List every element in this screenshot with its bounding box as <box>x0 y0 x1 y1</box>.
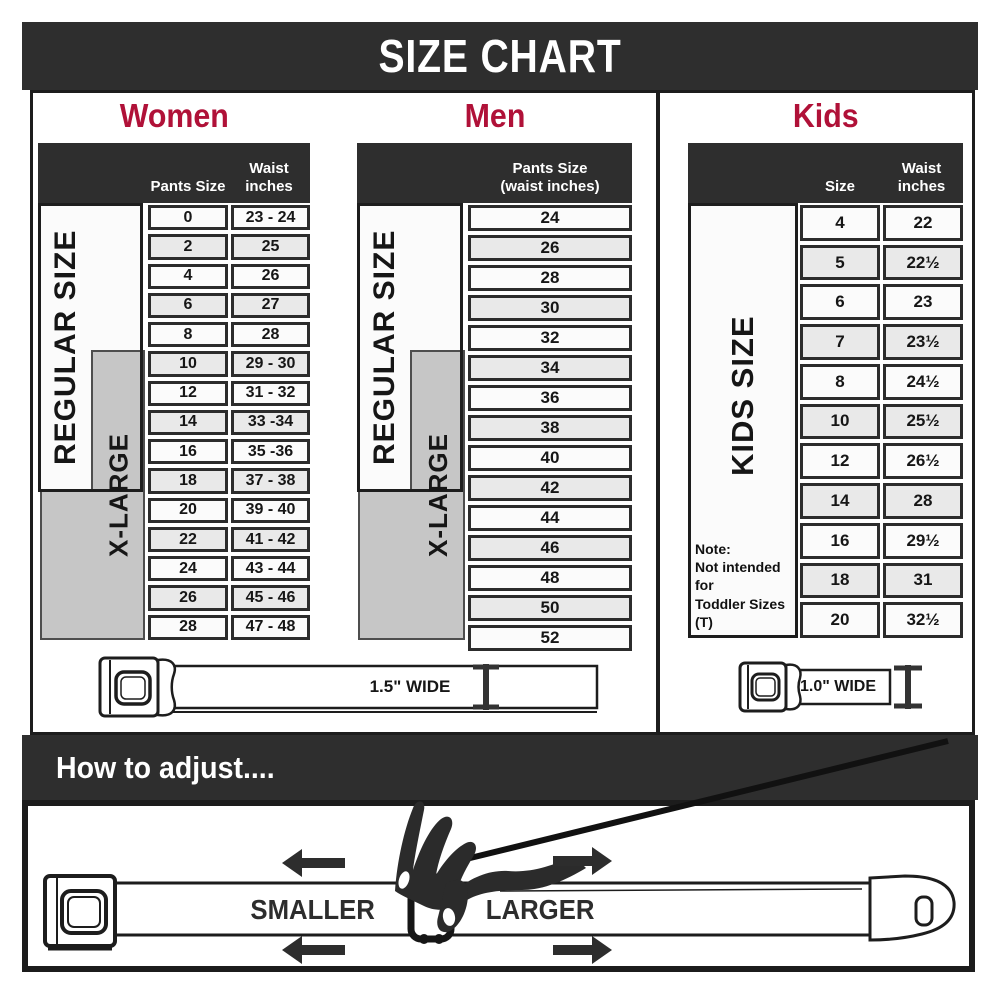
women-row-8-waist: 35 -36 <box>231 439 310 464</box>
women-row-6-waist: 31 - 32 <box>231 381 310 406</box>
men-row-1-pants-size: 26 <box>468 235 632 261</box>
men-row-12-pants-size: 48 <box>468 565 632 591</box>
women-row-13-waist: 45 - 46 <box>231 585 310 610</box>
kids-col-size: Size <box>800 143 880 203</box>
women-heading-text: Women <box>119 97 228 135</box>
women-section-heading: Women <box>38 95 310 137</box>
kids-size-box: KIDS SIZE Note: Not intended for Toddler… <box>688 203 798 638</box>
women-size-table: Pants Size Waist inches REGULAR SIZE X-L… <box>38 143 310 640</box>
men-section-heading: Men <box>357 95 632 137</box>
women-row-9-waist: 37 - 38 <box>231 468 310 493</box>
men-row-5-pants-size: 34 <box>468 355 632 381</box>
women-regular-size-label: REGULAR SIZE <box>38 203 94 492</box>
women-row-2-pants-size: 4 <box>148 264 228 289</box>
women-row-0-pants-size: 0 <box>148 205 228 230</box>
kids-row-10-waist: 32½ <box>883 602 963 638</box>
women-row-12-waist: 43 - 44 <box>231 556 310 581</box>
kids-row-9-waist: 31 <box>883 563 963 599</box>
kids-table-header: Size Waist inches <box>688 143 963 203</box>
title-band: SIZE CHART <box>22 22 978 90</box>
kids-row-0-waist: 22 <box>883 205 963 241</box>
women-row-13-pants-size: 26 <box>148 585 228 610</box>
adult-belt-strap-fold <box>158 660 175 716</box>
kids-row-0-size: 4 <box>800 205 880 241</box>
men-row-11-pants-size: 46 <box>468 535 632 561</box>
men-row-6-pants-size: 36 <box>468 385 632 411</box>
men-row-8-pants-size: 40 <box>468 445 632 471</box>
kids-row-3-waist: 23½ <box>883 324 963 360</box>
adjust-band: How to adjust.... <box>22 735 978 800</box>
kids-row-8-size: 16 <box>800 523 880 559</box>
kids-section-heading: Kids <box>688 95 963 137</box>
kids-rows: 422522½623723½824½1025½1226½14281629½183… <box>800 205 963 638</box>
women-row-8-pants-size: 16 <box>148 439 228 464</box>
kids-col-waist: Waist inches <box>880 143 963 203</box>
women-row-10-waist: 39 - 40 <box>231 498 310 523</box>
women-row-5-pants-size: 10 <box>148 351 228 376</box>
page-title: SIZE CHART <box>378 29 621 83</box>
women-row-14-waist: 47 - 48 <box>231 615 310 640</box>
kids-row-6-waist: 26½ <box>883 443 963 479</box>
women-row-7-pants-size: 14 <box>148 410 228 435</box>
kids-row-2-waist: 23 <box>883 284 963 320</box>
men-xlarge-label: X-LARGE <box>412 350 465 640</box>
women-row-10-pants-size: 20 <box>148 498 228 523</box>
women-row-5-waist: 29 - 30 <box>231 351 310 376</box>
women-row-3-pants-size: 6 <box>148 293 228 318</box>
women-rows: 023 - 242254266278281029 - 301231 - 3214… <box>148 205 310 640</box>
kids-row-2-size: 6 <box>800 284 880 320</box>
women-row-1-waist: 25 <box>231 234 310 259</box>
men-row-0-pants-size: 24 <box>468 205 632 231</box>
women-row-1-pants-size: 2 <box>148 234 228 259</box>
kids-row-4-size: 8 <box>800 364 880 400</box>
men-row-3-pants-size: 30 <box>468 295 632 321</box>
men-table-header: Pants Size (waist inches) <box>357 143 632 203</box>
men-row-4-pants-size: 32 <box>468 325 632 351</box>
women-row-0-waist: 23 - 24 <box>231 205 310 230</box>
adjust-heading: How to adjust.... <box>56 750 275 786</box>
kids-row-5-size: 10 <box>800 404 880 440</box>
kids-belt-width-label: 1.0" WIDE <box>798 675 878 699</box>
women-row-2-waist: 26 <box>231 264 310 289</box>
women-table-header: Pants Size Waist inches <box>38 143 310 203</box>
men-row-7-pants-size: 38 <box>468 415 632 441</box>
section-divider <box>656 90 660 735</box>
men-rows: 242628303234363840424446485052 <box>468 205 632 640</box>
women-row-6-pants-size: 12 <box>148 381 228 406</box>
women-row-4-pants-size: 8 <box>148 322 228 347</box>
kids-heading-text: Kids <box>793 97 859 135</box>
women-row-3-waist: 27 <box>231 293 310 318</box>
kids-row-3-size: 7 <box>800 324 880 360</box>
kids-row-10-size: 20 <box>800 602 880 638</box>
kids-note: Note: Not intended for Toddler Sizes (T) <box>695 540 795 631</box>
women-row-9-pants-size: 18 <box>148 468 228 493</box>
kids-row-1-waist: 22½ <box>883 245 963 281</box>
men-row-13-pants-size: 50 <box>468 595 632 621</box>
women-row-11-pants-size: 22 <box>148 527 228 552</box>
kids-row-8-waist: 29½ <box>883 523 963 559</box>
men-size-table: Pants Size (waist inches) REGULAR SIZE X… <box>357 143 632 640</box>
women-row-11-waist: 41 - 42 <box>231 527 310 552</box>
men-heading-text: Men <box>464 97 525 135</box>
kids-row-7-waist: 28 <box>883 483 963 519</box>
men-row-9-pants-size: 42 <box>468 475 632 501</box>
women-row-12-pants-size: 24 <box>148 556 228 581</box>
kids-row-5-waist: 25½ <box>883 404 963 440</box>
kids-size-table: Size Waist inches KIDS SIZE Note: Not in… <box>688 143 963 638</box>
men-row-10-pants-size: 44 <box>468 505 632 531</box>
kids-row-6-size: 12 <box>800 443 880 479</box>
kids-size-label: KIDS SIZE <box>691 206 795 586</box>
men-regular-size-label: REGULAR SIZE <box>357 203 413 492</box>
women-row-4-waist: 28 <box>231 322 310 347</box>
men-col-pants-size: Pants Size (waist inches) <box>468 143 632 203</box>
women-row-14-pants-size: 28 <box>148 615 228 640</box>
women-col-pants-size: Pants Size <box>143 143 233 203</box>
adult-belt-illustration <box>80 650 620 730</box>
kids-row-9-size: 18 <box>800 563 880 599</box>
adjust-illustration-box <box>22 800 975 972</box>
size-chart-graphic: SIZE CHART Women Men Kids Pants Size Wai… <box>0 0 1000 1000</box>
men-row-2-pants-size: 28 <box>468 265 632 291</box>
adult-belt-width-label: 1.5" WIDE <box>360 675 460 699</box>
men-row-14-pants-size: 52 <box>468 625 632 651</box>
women-col-waist: Waist inches <box>228 143 310 203</box>
kids-row-7-size: 14 <box>800 483 880 519</box>
women-xlarge-label: X-LARGE <box>93 350 145 640</box>
kids-row-4-waist: 24½ <box>883 364 963 400</box>
larger-label: LARGER <box>478 895 603 925</box>
smaller-label: SMALLER <box>245 895 380 925</box>
women-row-7-waist: 33 -34 <box>231 410 310 435</box>
kids-row-1-size: 5 <box>800 245 880 281</box>
